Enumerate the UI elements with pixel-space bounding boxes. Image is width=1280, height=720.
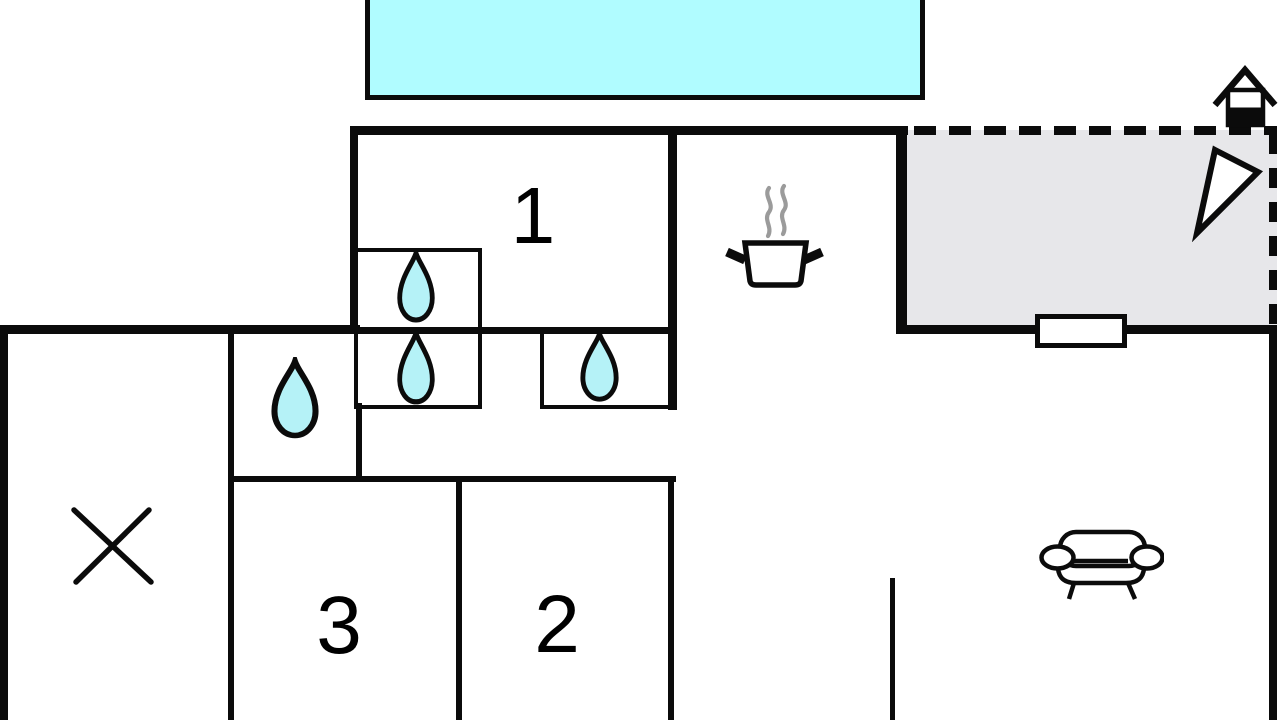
north-arrow-icon	[1186, 142, 1270, 242]
terrace-dashed-edge-right	[1269, 134, 1277, 330]
floor-plan: 1 3 2	[0, 0, 1280, 720]
water-drop-icon	[266, 357, 324, 441]
wall-mid-left-vertical	[228, 330, 234, 720]
wall-hall-bottom	[228, 476, 676, 482]
wall-terrace-left	[896, 126, 907, 334]
wall-room2-right	[668, 479, 674, 720]
wall-droproom-right	[356, 403, 362, 480]
water-drop-icon	[393, 249, 439, 325]
swimming-pool	[365, 0, 925, 100]
room-2-label: 2	[534, 584, 580, 666]
water-drop-icon	[576, 330, 623, 404]
wall-outer-right	[1269, 330, 1277, 720]
sofa-icon	[1038, 498, 1164, 610]
wall-outer-left	[0, 325, 8, 720]
steam-icon	[782, 186, 786, 234]
house-marker-icon	[1210, 62, 1280, 130]
cross-mark-icon	[66, 502, 158, 590]
wall-top	[350, 126, 908, 135]
water-drop-icon	[393, 329, 439, 407]
window	[1035, 314, 1127, 348]
wall-room3-room2-divider	[456, 479, 462, 720]
cooking-pot-icon	[723, 180, 825, 288]
room-3-label: 3	[316, 585, 362, 667]
wall-stub	[890, 578, 895, 720]
wall-outer-left-horizontal	[0, 325, 360, 334]
room-1-label: 1	[511, 176, 556, 256]
steam-icon	[767, 188, 771, 236]
